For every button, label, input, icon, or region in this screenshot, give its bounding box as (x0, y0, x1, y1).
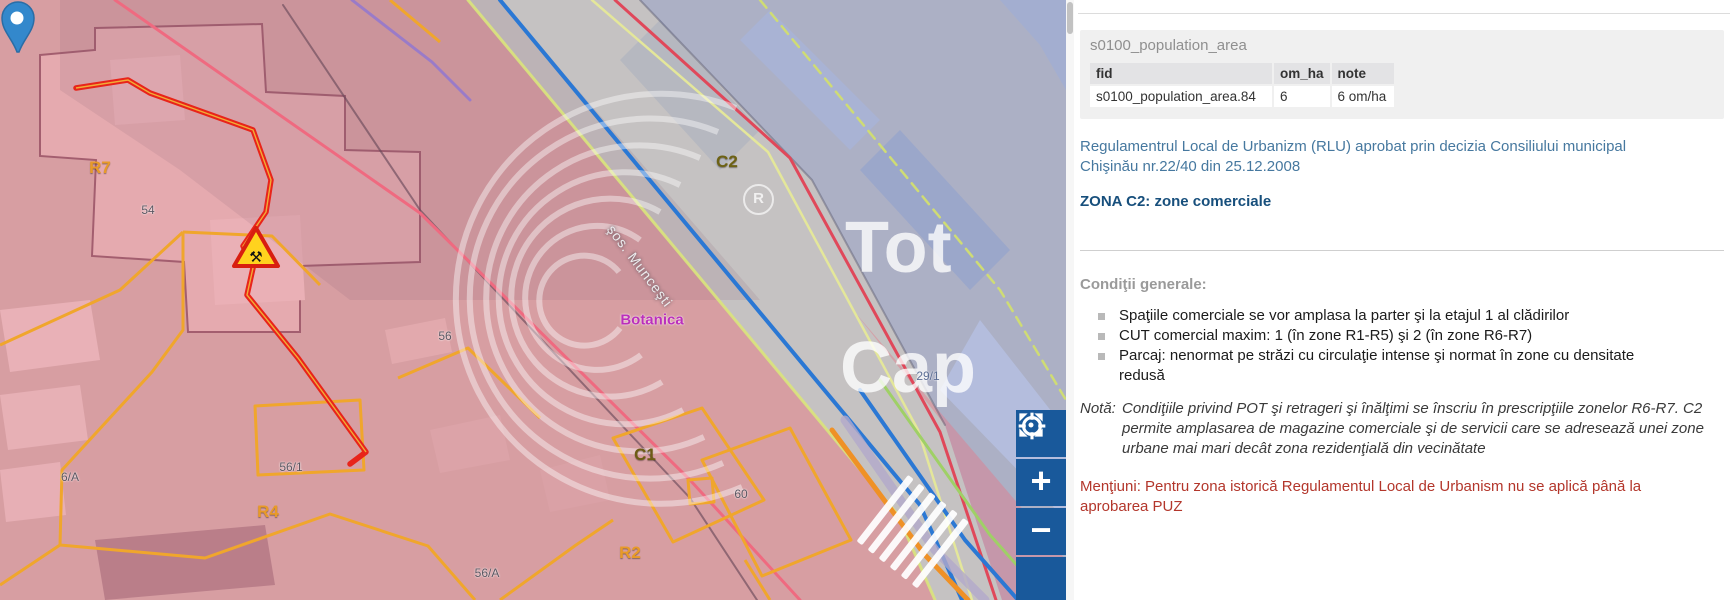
minus-icon: − (1030, 512, 1051, 548)
section-divider (1080, 250, 1724, 251)
feature-attributes-table: fid om_ha note s0100_population_area.84 … (1088, 61, 1396, 109)
bullet-square-icon (1098, 313, 1105, 320)
map-label-54: 54 (141, 203, 154, 217)
map-label-29-1: 29/1 (916, 369, 939, 383)
cell-fid: s0100_population_area.84 (1090, 86, 1272, 107)
cell-note: 6 om/ha (1332, 86, 1394, 107)
map-label-56: 56 (438, 329, 451, 343)
bullet-square-icon (1098, 333, 1105, 340)
scrollbar-thumb[interactable] (1067, 2, 1073, 34)
zone-title: ZONA C2: zone comerciale (1080, 193, 1724, 210)
column-header-fid: fid (1090, 63, 1272, 84)
zoom-in-button[interactable]: + (1016, 459, 1066, 506)
watermark-registered-icon: R (743, 184, 774, 215)
mentions-text: Menţiuni: Pentru zona istorică Regulamen… (1080, 477, 1680, 517)
list-item: Parcaj: nenormat pe străzi cu circulaţie… (1080, 346, 1724, 386)
plus-icon: + (1030, 463, 1051, 499)
map-marker-pin[interactable] (0, 0, 36, 54)
bullet-square-icon (1098, 353, 1105, 360)
map-label-60: 60 (734, 487, 747, 501)
map-label-botanica: Botanica (620, 312, 683, 329)
panel-content: s0100_population_area fid om_ha note s01… (1080, 0, 1724, 517)
map-label-r2: R2 (619, 543, 641, 563)
zoom-out-button[interactable]: − (1016, 508, 1066, 555)
map-label-r7: R7 (89, 158, 111, 178)
note-label: Notă: (1080, 399, 1122, 459)
panel-scrollbar[interactable] (1066, 0, 1074, 600)
map-label-6a: 6/A (61, 470, 79, 484)
expand-arrows-icon (1016, 410, 1046, 440)
list-item: Spaţiile comerciale se vor amplasa la pa… (1080, 306, 1724, 326)
cell-omha: 6 (1274, 86, 1330, 107)
map-canvas[interactable]: ⚒ Tot Cap R R7 54 6/A R4 56/1 56 56/A C1… (0, 0, 1066, 600)
svg-text:⚒: ⚒ (249, 248, 262, 266)
map-label-c1: C1 (634, 445, 656, 465)
map-label-56a: 56/A (475, 566, 500, 580)
condition-text: CUT comercial maxim: 1 (în zone R1-R5) ş… (1119, 326, 1532, 346)
condition-text: Spaţiile comerciale se vor amplasa la pa… (1119, 306, 1569, 326)
column-header-note: note (1332, 63, 1394, 84)
column-header-omha: om_ha (1274, 63, 1330, 84)
table-header-row: fid om_ha note (1090, 63, 1394, 84)
table-row: s0100_population_area.84 6 6 om/ha (1090, 86, 1394, 107)
condition-text: Parcaj: nenormat pe străzi cu circulaţie… (1119, 346, 1679, 386)
map-controls: + − (1016, 410, 1066, 600)
fullscreen-button[interactable] (1016, 557, 1066, 600)
map-label-56-1: 56/1 (279, 460, 302, 474)
feature-layer-title: s0100_population_area (1090, 37, 1716, 54)
conditions-list: Spaţiile comerciale se vor amplasa la pa… (1080, 306, 1724, 386)
map-label-r4: R4 (257, 502, 279, 522)
info-panel: s0100_population_area fid om_ha note s01… (1066, 0, 1730, 600)
map-label-c2: C2 (716, 152, 738, 172)
note-text: Condiţiile privind POT şi retrageri şi î… (1122, 399, 1718, 459)
list-item: CUT comercial maxim: 1 (în zone R1-R5) ş… (1080, 326, 1724, 346)
note-row: Notă: Condiţiile privind POT şi retrager… (1080, 399, 1724, 459)
feature-info-box: s0100_population_area fid om_ha note s01… (1080, 30, 1724, 119)
conditions-heading: Condiţii generale: (1080, 276, 1724, 293)
regulation-intro: Regulamentrul Local de Urbanizm (RLU) ap… (1080, 137, 1678, 177)
